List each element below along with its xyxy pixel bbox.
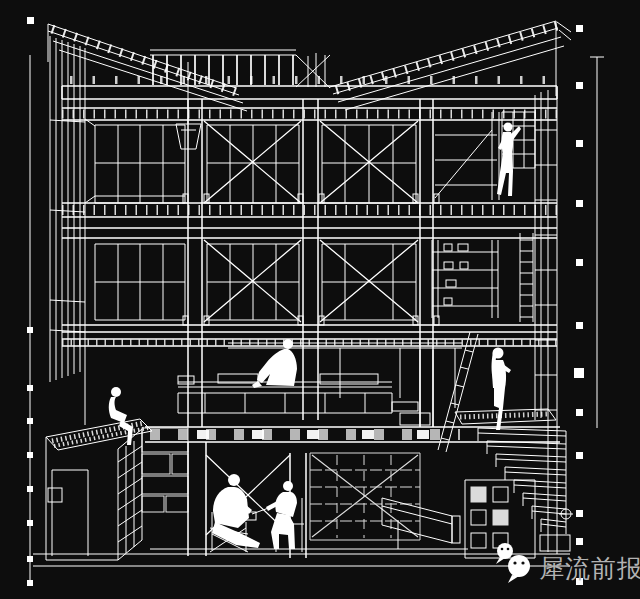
background — [0, 0, 640, 599]
watermark-text: 犀流前报 — [539, 554, 640, 582]
article-image: 犀流前报 — [0, 0, 640, 599]
section-drawing: 犀流前报 — [0, 0, 640, 599]
